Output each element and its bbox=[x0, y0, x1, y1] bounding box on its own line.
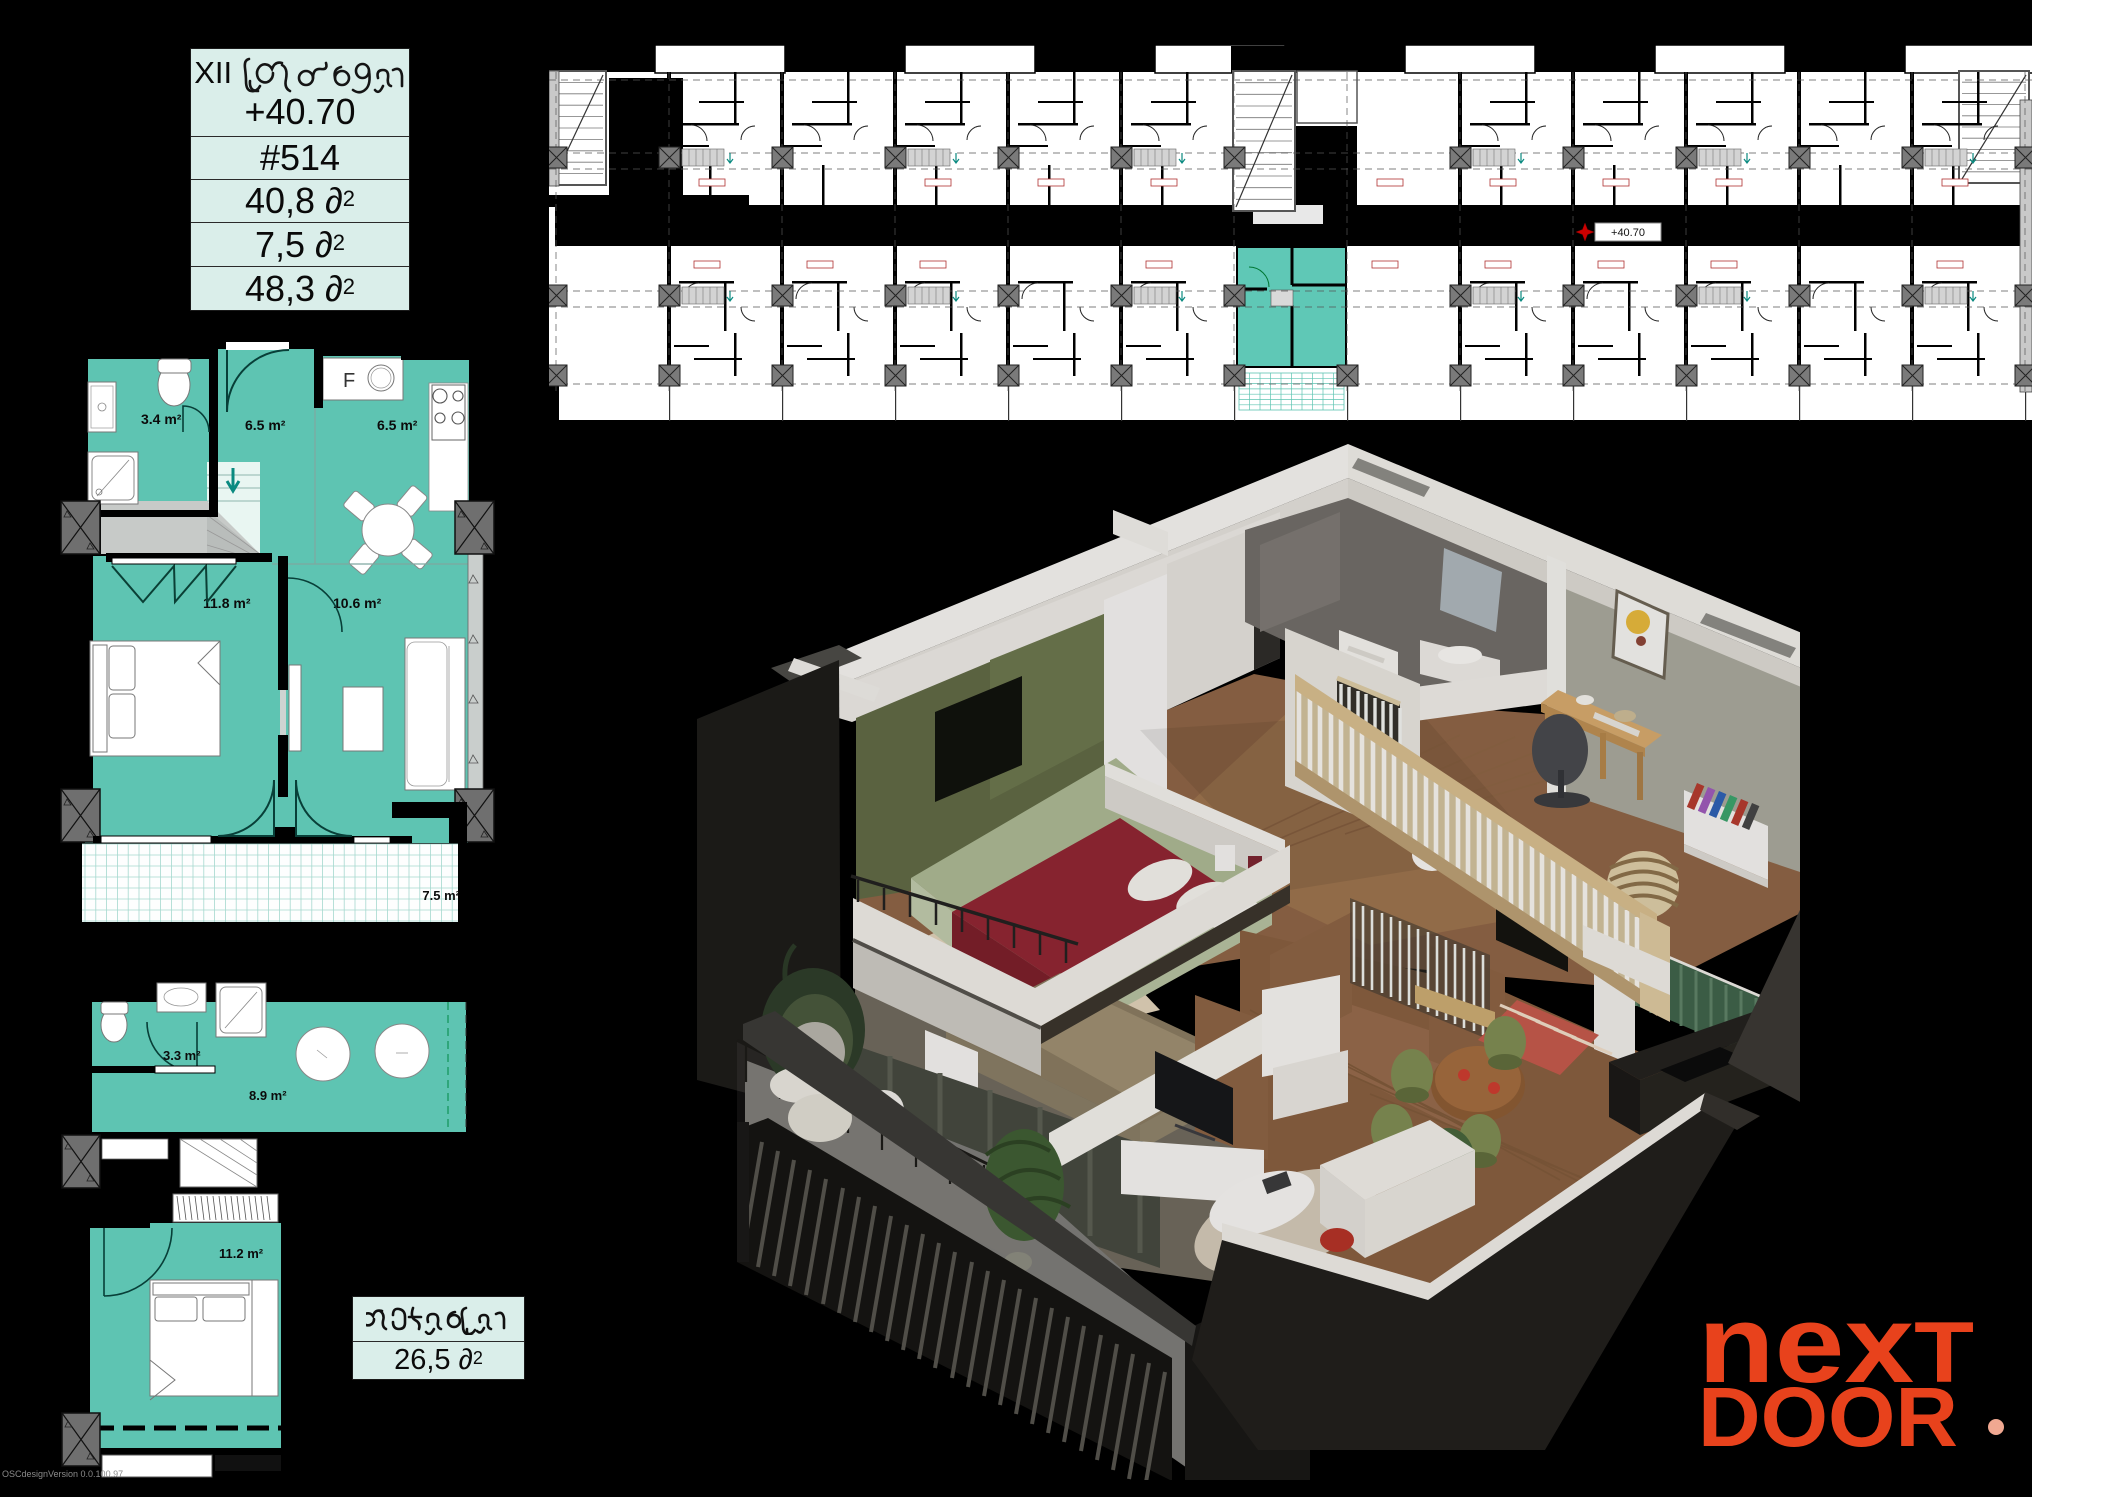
svg-text:F: F bbox=[343, 370, 355, 392]
svg-text:3.3 m²: 3.3 m² bbox=[163, 1048, 201, 1063]
svg-text:3.4 m²: 3.4 m² bbox=[141, 411, 182, 427]
svg-text:7.5 m²: 7.5 m² bbox=[422, 888, 460, 903]
svg-text:6.5 m²: 6.5 m² bbox=[245, 417, 286, 433]
svg-text:+40.70: +40.70 bbox=[1611, 227, 1645, 239]
svg-text:DOOR: DOOR bbox=[1698, 1370, 1958, 1464]
svg-text:6.5 m²: 6.5 m² bbox=[377, 417, 418, 433]
svg-text:11.2 m²: 11.2 m² bbox=[219, 1246, 264, 1261]
svg-text:10.6 m²: 10.6 m² bbox=[333, 595, 382, 611]
svg-text:8.9 m²: 8.9 m² bbox=[249, 1088, 287, 1103]
